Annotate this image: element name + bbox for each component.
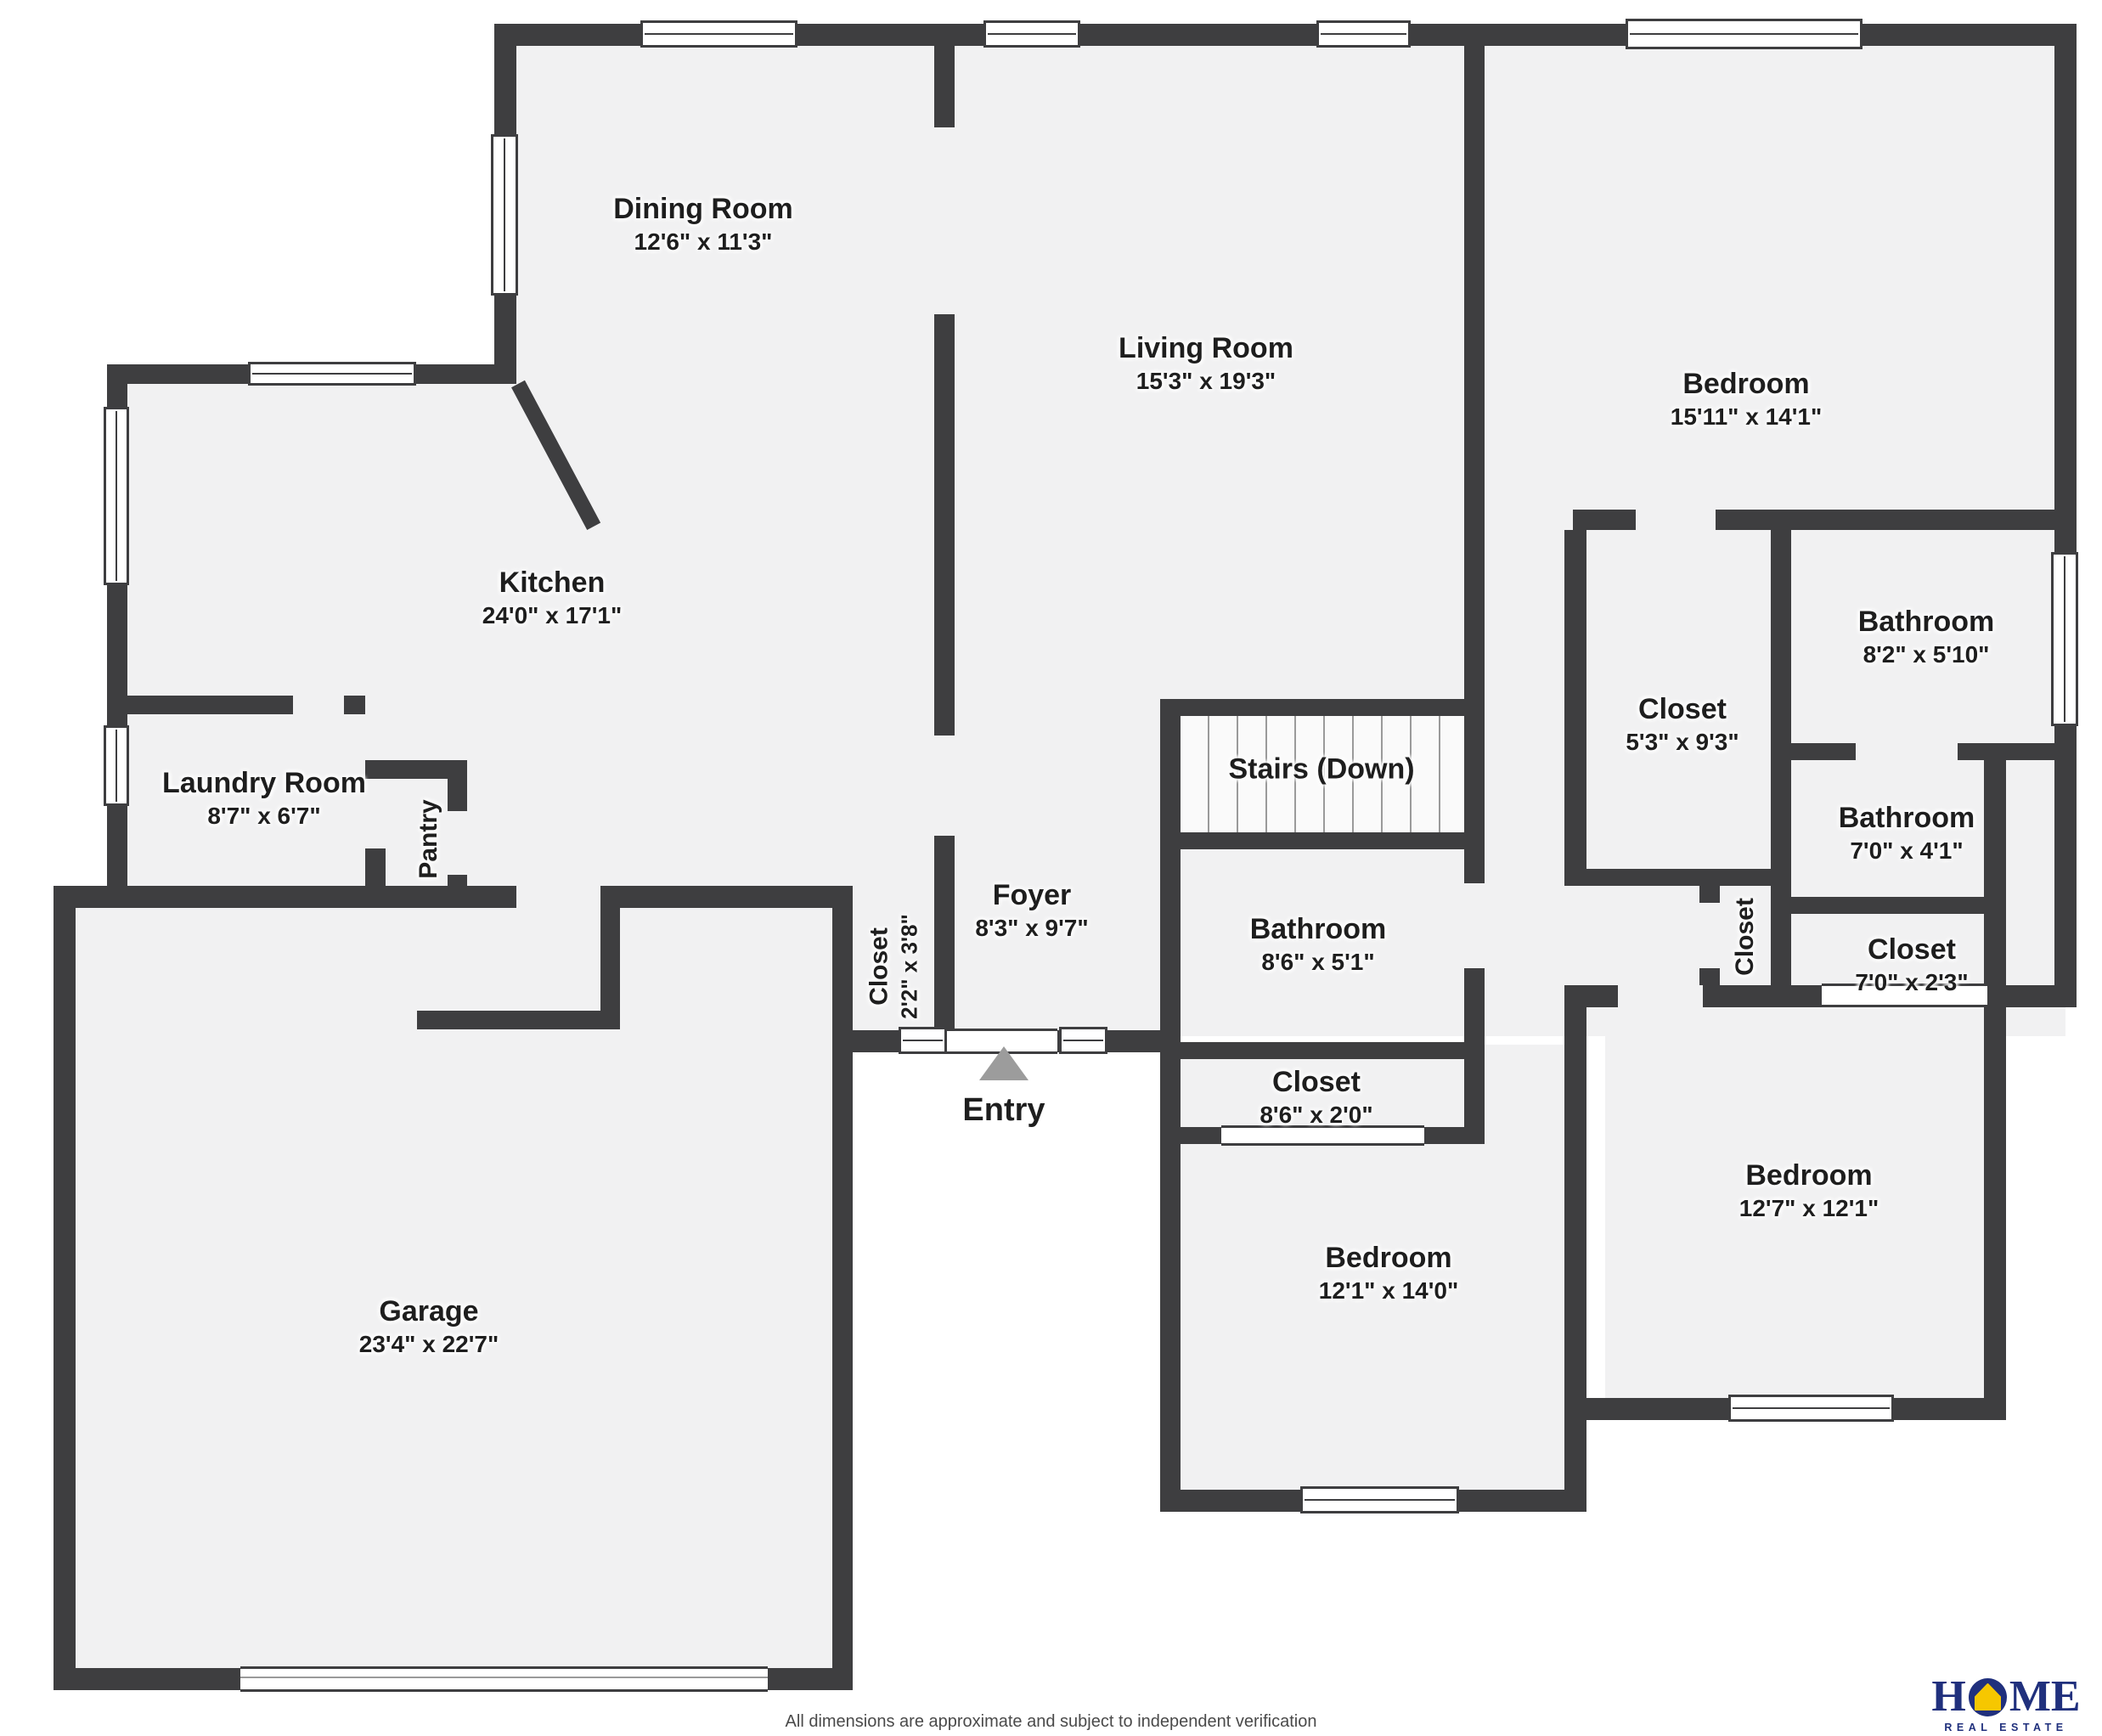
room-label-entry: Entry bbox=[962, 1092, 1045, 1130]
wall bbox=[127, 696, 293, 714]
wall bbox=[1160, 699, 1181, 1512]
wall bbox=[1984, 760, 2006, 1420]
logo-word: H ME bbox=[1921, 1675, 2091, 1719]
room-label-kitchen: Kitchen 24'0" x 17'1" bbox=[482, 566, 622, 629]
room-dims: 15'3" x 19'3" bbox=[1119, 368, 1293, 395]
wall bbox=[54, 886, 76, 1690]
floor-plan: Dining Room 12'6" x 11'3" Living Room 15… bbox=[0, 0, 2102, 1736]
wall bbox=[1160, 1042, 1485, 1059]
window bbox=[2051, 552, 2078, 726]
wall bbox=[934, 836, 955, 1052]
logo-letter-h: H bbox=[1931, 1675, 1965, 1719]
logo-house-icon bbox=[1969, 1678, 2007, 1716]
wall bbox=[934, 314, 955, 736]
room-dims: 23'4" x 22'7" bbox=[359, 1331, 499, 1358]
room-label-closet-right: Closet 7'0" x 2'3" bbox=[1855, 933, 1968, 996]
window bbox=[104, 725, 129, 806]
logo-subtitle: REAL ESTATE bbox=[1921, 1722, 2091, 1733]
room-dims: 7'0" x 2'3" bbox=[1855, 969, 1968, 996]
home-real-estate-logo: H ME REAL ESTATE bbox=[1921, 1675, 2091, 1733]
wall bbox=[1564, 985, 1586, 1512]
room-label-bathroom-master: Bathroom 8'2" x 5'10" bbox=[1858, 606, 1995, 668]
room-dims: 8'3" x 9'7" bbox=[975, 915, 1088, 942]
window bbox=[1316, 20, 1411, 48]
garage-door bbox=[240, 1666, 768, 1692]
room-label-closet-master: Closet 5'3" x 9'3" bbox=[1626, 693, 1739, 756]
room-label-stairs: Stairs (Down) bbox=[1228, 752, 1414, 786]
window bbox=[491, 134, 518, 296]
wall bbox=[1771, 897, 2004, 914]
wall bbox=[934, 46, 955, 127]
room-name: Pantry bbox=[414, 799, 444, 878]
window bbox=[1626, 19, 1862, 49]
room-name: Kitchen bbox=[482, 566, 622, 600]
room-dims: 5'3" x 9'3" bbox=[1626, 729, 1739, 756]
entry-arrow-icon bbox=[979, 1046, 1028, 1080]
room-name: Dining Room bbox=[613, 193, 793, 226]
window bbox=[1728, 1395, 1894, 1422]
wall bbox=[1160, 1127, 1221, 1144]
room-name: Foyer bbox=[975, 879, 1088, 912]
wall bbox=[1464, 46, 1485, 510]
room-dims: 12'7" x 12'1" bbox=[1739, 1195, 1879, 1222]
room-label-bathroom-middle: Bathroom 7'0" x 4'1" bbox=[1839, 802, 1975, 865]
wall bbox=[1573, 510, 1636, 530]
wall bbox=[417, 1011, 620, 1029]
wall bbox=[832, 908, 853, 1690]
room-dims: 8'2" x 5'10" bbox=[1858, 641, 1995, 668]
room-name: Garage bbox=[359, 1295, 499, 1328]
wall bbox=[1464, 510, 1485, 883]
wall bbox=[600, 886, 853, 908]
room-label-closet-vertical: Closet bbox=[1731, 898, 1761, 976]
wall bbox=[1160, 832, 1485, 849]
wall bbox=[1699, 968, 1720, 985]
room-name: Bedroom bbox=[1319, 1242, 1458, 1275]
wall bbox=[600, 908, 620, 1011]
wall bbox=[54, 886, 516, 908]
wall bbox=[448, 779, 467, 811]
room-dims: 2'2" x 3'8" bbox=[897, 914, 922, 1019]
wall bbox=[1987, 985, 2077, 1007]
wall bbox=[1464, 968, 1485, 1144]
wall bbox=[365, 760, 467, 779]
room-label-foyer: Foyer 8'3" x 9'7" bbox=[975, 879, 1088, 942]
room-label-bathroom-hall: Bathroom 8'6" x 5'1" bbox=[1250, 913, 1387, 976]
wall bbox=[1699, 886, 1720, 903]
wall bbox=[1716, 510, 2077, 530]
window bbox=[1300, 1486, 1459, 1513]
wall bbox=[344, 696, 365, 714]
wall bbox=[1564, 869, 1784, 886]
room-dims: 24'0" x 17'1" bbox=[482, 602, 622, 629]
room-name: Closet bbox=[1260, 1066, 1372, 1099]
room-label-living: Living Room 15'3" x 19'3" bbox=[1119, 332, 1293, 395]
room-dims: 8'6" x 2'0" bbox=[1260, 1102, 1372, 1129]
room-name: Closet bbox=[865, 914, 894, 1019]
entry-sidelight-window bbox=[1059, 1027, 1107, 1054]
wall bbox=[1958, 743, 2077, 760]
window bbox=[983, 20, 1080, 48]
window bbox=[104, 407, 129, 585]
logo-letters-me: ME bbox=[2009, 1675, 2081, 1719]
window bbox=[248, 362, 416, 386]
room-name: Stairs (Down) bbox=[1228, 752, 1414, 786]
room-label-dining: Dining Room 12'6" x 11'3" bbox=[613, 193, 793, 256]
wall bbox=[1703, 985, 1822, 1007]
entry-sidelight-window bbox=[899, 1027, 947, 1054]
room-name: Bathroom bbox=[1839, 802, 1975, 835]
room-name: Bathroom bbox=[1250, 913, 1387, 946]
room-label-pantry: Pantry bbox=[414, 799, 444, 878]
room-dims: 12'6" x 11'3" bbox=[613, 228, 793, 256]
room-name: Living Room bbox=[1119, 332, 1293, 365]
wall bbox=[1160, 699, 1485, 716]
room-name: Bedroom bbox=[1671, 368, 1822, 401]
room-label-bedroom-bottom-center: Bedroom 12'1" x 14'0" bbox=[1319, 1242, 1458, 1305]
wall bbox=[54, 1668, 240, 1690]
room-dims: 8'7" x 6'7" bbox=[162, 803, 366, 830]
wall bbox=[1564, 985, 1618, 1007]
wall bbox=[1564, 530, 1586, 869]
room-label-closet-entry: Closet 2'2" x 3'8" bbox=[865, 914, 921, 1019]
room-label-garage: Garage 23'4" x 22'7" bbox=[359, 1295, 499, 1358]
room-name: Closet bbox=[1731, 898, 1761, 976]
room-name: Bathroom bbox=[1858, 606, 1995, 639]
room-dims: 8'6" x 5'1" bbox=[1250, 949, 1387, 976]
disclaimer-text: All dimensions are approximate and subje… bbox=[0, 1712, 2102, 1732]
room-name: Entry bbox=[962, 1092, 1045, 1130]
room-name: Laundry Room bbox=[162, 767, 366, 800]
room-label-bedroom-bottom-right: Bedroom 12'7" x 12'1" bbox=[1739, 1159, 1879, 1222]
room-label-bedroom-top-right: Bedroom 15'11" x 14'1" bbox=[1671, 368, 1822, 431]
room-dims: 7'0" x 4'1" bbox=[1839, 837, 1975, 865]
room-dims: 15'11" x 14'1" bbox=[1671, 403, 1822, 431]
wall bbox=[1771, 743, 1856, 760]
room-name: Closet bbox=[1626, 693, 1739, 726]
window bbox=[640, 20, 797, 48]
room-dims: 12'1" x 14'0" bbox=[1319, 1277, 1458, 1305]
room-name: Closet bbox=[1855, 933, 1968, 967]
room-label-closet-hall: Closet 8'6" x 2'0" bbox=[1260, 1066, 1372, 1129]
room-name: Bedroom bbox=[1739, 1159, 1879, 1192]
room-label-laundry: Laundry Room 8'7" x 6'7" bbox=[162, 767, 366, 830]
